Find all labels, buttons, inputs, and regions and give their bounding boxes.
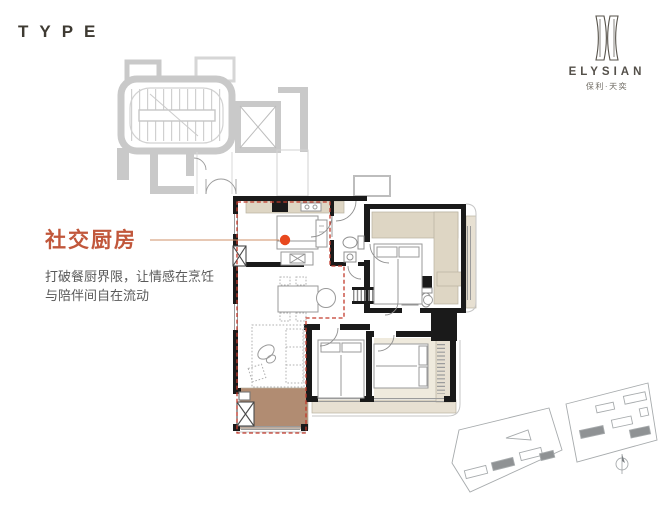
callout-title: 社交厨房 [45, 224, 280, 254]
plant [255, 342, 277, 362]
page-title: TYPE [18, 22, 106, 42]
floor-plan-page: TYPE ELYSIAN 保利·天奕 社交厨房 打破餐厨界限，让情感在烹饪 与陪… [0, 0, 660, 508]
feature-callout: 社交厨房 打破餐厨界限，让情感在烹饪 与陪伴间自在流动 [45, 224, 280, 305]
fridge [316, 220, 327, 247]
bath-top [343, 236, 364, 262]
brand-logo: ELYSIAN 保利·天奕 [553, 14, 660, 92]
round-table [317, 289, 336, 308]
sofa [286, 329, 303, 383]
dining-area [278, 277, 336, 321]
site-plan [452, 383, 657, 492]
callout-description: 打破餐厨界限，让情感在烹饪 与陪伴间自在流动 [45, 267, 280, 305]
callout-line: 打破餐厨界限，让情感在烹饪 [45, 267, 280, 286]
brand-name: ELYSIAN [553, 66, 660, 78]
sofa-zone [252, 325, 304, 387]
bedroom-bottom-middle [318, 340, 364, 398]
callout-line: 与陪伴间自在流动 [45, 286, 280, 305]
elysian-emblem-icon [592, 14, 622, 62]
brand-subtitle: 保利·天奕 [553, 81, 660, 92]
elevator-shaft [238, 104, 278, 150]
dining-table [278, 286, 318, 312]
living-room [248, 325, 304, 387]
kitchen-marker-dot [280, 235, 290, 245]
armchair [248, 364, 266, 382]
stair-core [117, 58, 308, 196]
north-compass-icon [616, 454, 628, 474]
